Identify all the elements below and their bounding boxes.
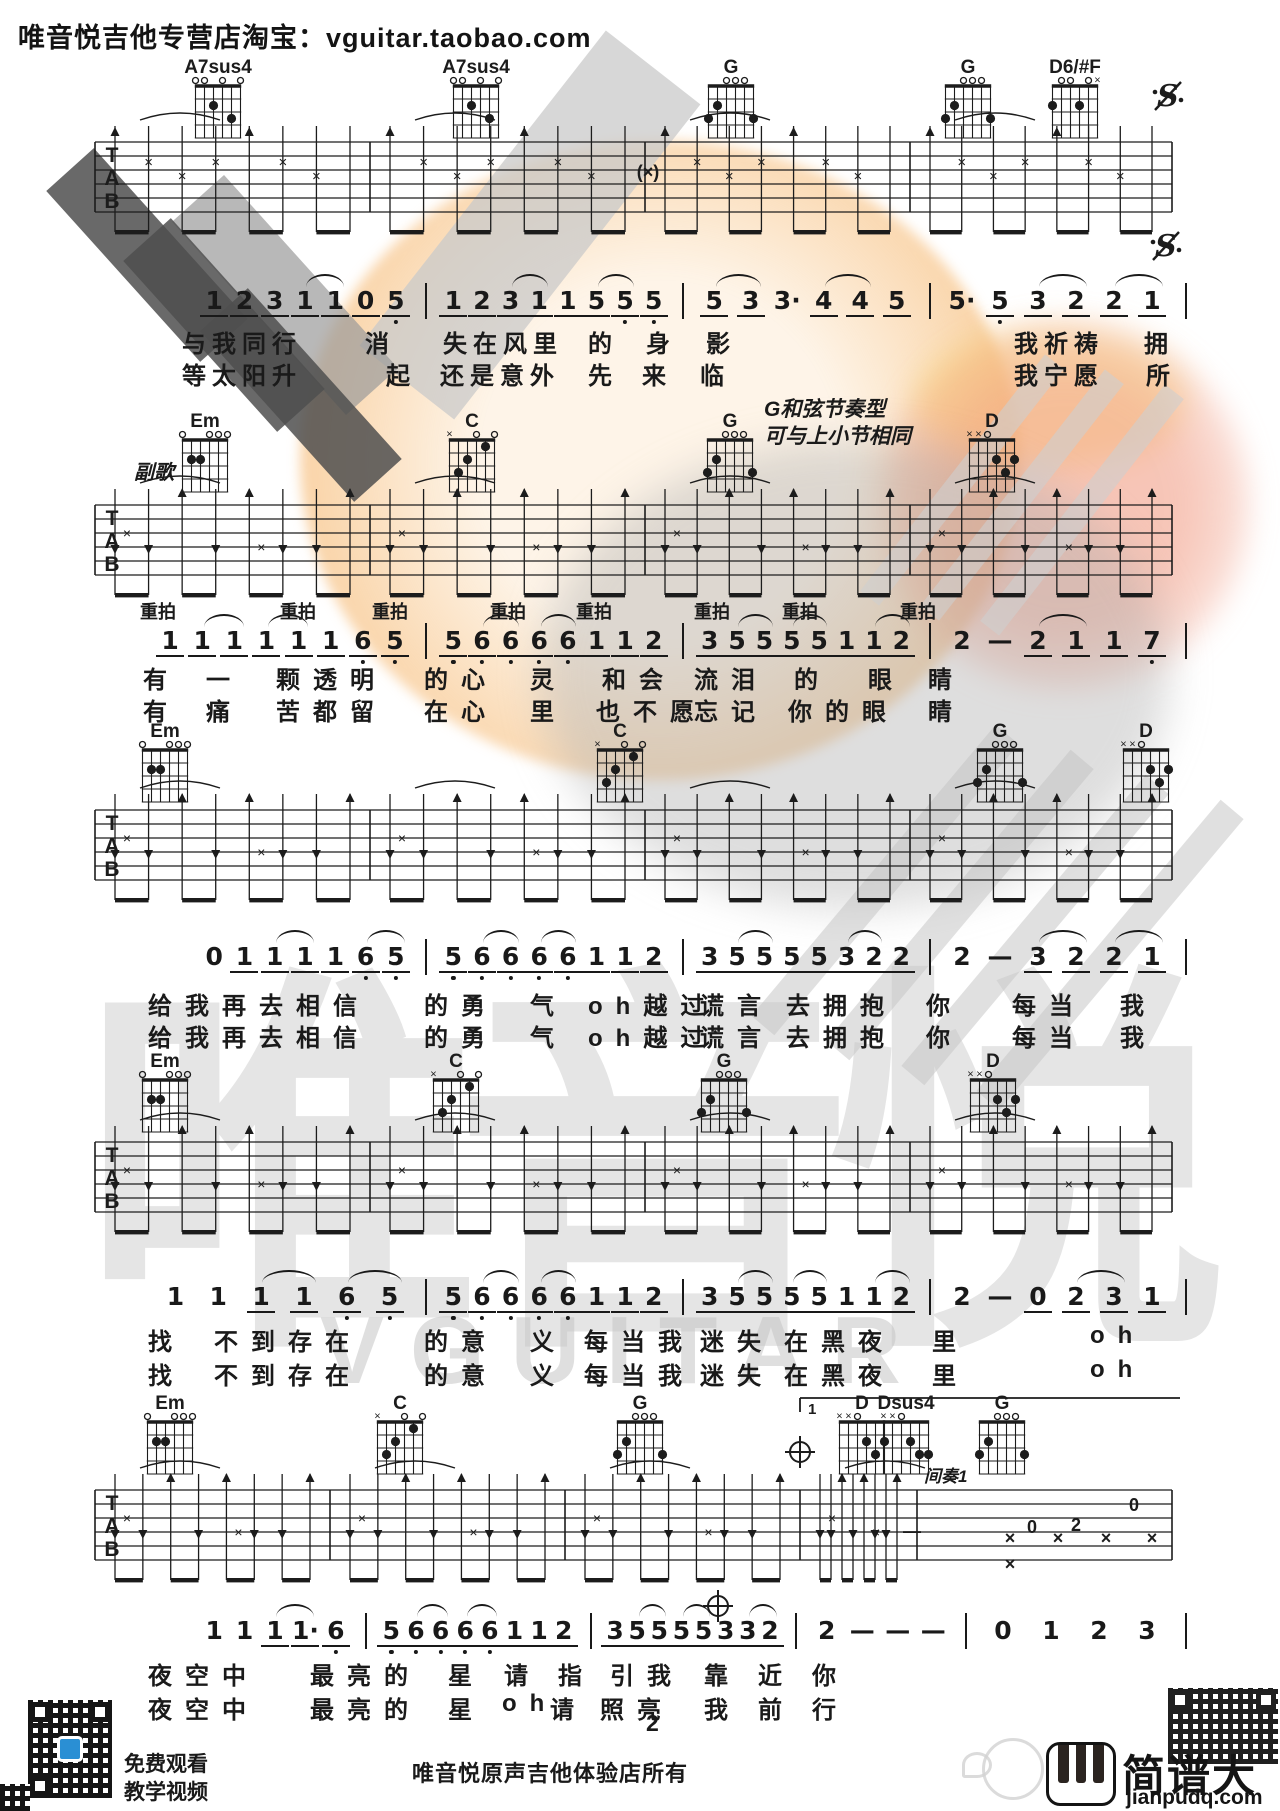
barline (682, 283, 684, 319)
barline (929, 939, 931, 975)
rhythm-annotation: G和弦节奏型可与上小节相同 (764, 396, 911, 451)
lyric-segment: 起 (386, 356, 416, 391)
jianpu-note: 6 (525, 942, 553, 973)
wechat-bubble-icon (962, 1752, 992, 1778)
jianpu-note: 6 (497, 942, 525, 973)
jianpu-note: 5· (948, 286, 976, 316)
jianpu-note: 5 (750, 1282, 778, 1313)
jianpu-note: 1 (285, 626, 313, 657)
jianpu-note: 6 (349, 626, 377, 657)
lyric-segment: 的 (794, 660, 831, 695)
guitar-tab-page: 唯音悦 VGUITAR A7sus4A7sus4GGD6/#F×TAB×××××… (0, 0, 1280, 1811)
lyric-segment: 所 (1146, 356, 1176, 391)
jianpu-note: 5 (805, 942, 833, 973)
jianpu-note: 4 (846, 286, 874, 317)
jianpu-note: 0 (200, 942, 228, 972)
lyric-segment: 星 (448, 1656, 485, 1691)
barline (965, 1613, 967, 1649)
interlude-label: 间奏1 (924, 1462, 967, 1487)
store-header: 唯音悦吉他专营店淘宝：vguitar.taobao.com (18, 16, 592, 55)
barline (929, 283, 931, 319)
lyric-segment: 你 (812, 1656, 849, 1691)
jianpu-note: 2 (813, 1616, 841, 1646)
lyric-segment: 痛 (206, 692, 243, 727)
barline (1185, 1279, 1187, 1315)
lyric-segment: 行 (812, 1690, 849, 1725)
jianpu-note: 1 (525, 286, 553, 317)
lyric-segment: 临 (700, 356, 730, 391)
lyric-segment: 苦都留 (276, 692, 387, 727)
jianpu-note: 2 (887, 1282, 915, 1313)
jianpu-note: 5 (381, 626, 409, 657)
jianpu-note: 1 (1062, 626, 1090, 657)
barline (1185, 623, 1187, 659)
lyric-segment: 里 (932, 1322, 969, 1357)
jianpu-note: 5 (582, 286, 610, 317)
lyric-segment: 气 (530, 986, 567, 1021)
jianpu-note: 1 (833, 1282, 861, 1313)
lyric-segment: 睛 (928, 692, 965, 727)
jianpu-note: 3 (696, 942, 724, 973)
jianpu-note: 1 (1037, 1616, 1065, 1646)
qr-code-left (28, 1700, 112, 1798)
lyric-segment: 影 (706, 324, 736, 359)
jianpu-note: 5 (805, 626, 833, 657)
lyric-segment: 失在风里 (443, 324, 563, 359)
jianpu-note: 6 (554, 942, 582, 973)
jianpu-note: 5 (750, 942, 778, 973)
jianpu-note: 3 (1024, 286, 1052, 317)
lyric-segment: 里 (530, 692, 567, 727)
jianpu-note: 5 (778, 942, 806, 973)
jianpu-note: 2 (1062, 942, 1090, 973)
lyric-segment: 每当 (1012, 986, 1086, 1021)
lyric-segment: 不到存在 (214, 1356, 362, 1391)
lyric-segment: 你的眼 (788, 692, 899, 727)
lyric-segment: 你 (926, 1018, 963, 1053)
jianpu-note: 1 (291, 286, 319, 317)
lyric-segment: 请 (550, 1690, 587, 1725)
jianpu-note: 6 (525, 1282, 553, 1313)
jianpu-note: 1 (1138, 1282, 1166, 1313)
jianpu-note: 1 (290, 1282, 318, 1313)
lyric-segment: 我 (704, 1690, 741, 1725)
accent-label: 重拍 (140, 598, 176, 624)
lyric-segment: 的意 (424, 1322, 498, 1357)
lyric-segment: 最亮的 (310, 1656, 421, 1691)
jianpu-note: 6 (333, 1282, 361, 1313)
jianpu-note: 6 (497, 1282, 525, 1313)
jianpu-note: 2 (1062, 1282, 1090, 1313)
jianpu-note: 5 (439, 1282, 467, 1313)
lyric-segment: 每当我 (584, 1356, 695, 1391)
jianpu-note: 1 (611, 626, 639, 657)
lyric-segment: 的心 (424, 660, 498, 695)
jianpu-note: 2 (948, 942, 976, 972)
jianpu-note: 1 (611, 942, 639, 973)
jianpu-note: 6 (468, 626, 496, 657)
lyric-segment: 消 (365, 324, 395, 359)
lyric-segment: 请 (504, 1656, 541, 1691)
jianpu-note: 6 (525, 626, 553, 657)
lyric-segment: 的勇 (424, 1018, 498, 1053)
barline (1185, 1613, 1187, 1649)
jianpu-note: 3 (1100, 1282, 1128, 1313)
jianpu-note: 5 (805, 1282, 833, 1313)
lyric-segment: 星 (448, 1690, 485, 1725)
jianpu-note: 5 (778, 1282, 806, 1313)
jianpu-note: 2 (230, 286, 258, 317)
jianpu-note: 1 (252, 626, 280, 657)
jianpu-note: 5 (611, 286, 639, 317)
jianpu-note: 5 (640, 286, 668, 317)
jianpu-note: 1 (188, 626, 216, 657)
lyric-segment: 义 (530, 1322, 567, 1357)
lyric-segment: 每当 (1012, 1018, 1086, 1053)
lyric-segment: 给我再去相信 (148, 1018, 370, 1053)
lyric-segment: 灵 (530, 660, 567, 695)
lyric-segment: 有 (143, 660, 180, 695)
lyric-segment: 等太阳升 (182, 356, 302, 391)
barline (795, 1613, 797, 1649)
lyric-segment: 在黑夜 (784, 1356, 895, 1391)
accent-label: 重拍 (372, 598, 408, 624)
lyric-segment: 我 (1120, 986, 1157, 1021)
jianpu-note: 6 (554, 626, 582, 657)
lyric-segment: oh越过 (588, 986, 717, 1021)
jianpu-note: 1 (230, 942, 258, 973)
jianpu-note: 1 (204, 1282, 232, 1312)
footer-center-text: 唯音悦原声吉他体验店所有 (412, 1756, 688, 1788)
jianpu-note: 2 (887, 626, 915, 657)
jianpu-note: 1 (247, 1282, 275, 1313)
jianpu-note: 6 (497, 626, 525, 657)
wechat-ghost-icon (982, 1738, 1044, 1800)
jianpu-note: 3 (833, 942, 861, 973)
jianpu-note: 1 (1138, 286, 1166, 317)
footer-caption-1: 免费观看 (124, 1748, 208, 1778)
barline (929, 623, 931, 659)
jianpu-note: — (884, 1616, 912, 1646)
jianpu-note: 2 (640, 942, 668, 973)
lyric-segment: 里 (932, 1356, 969, 1391)
barline (682, 623, 684, 659)
lyric-segment: 迷失 (700, 1322, 774, 1357)
barline (682, 939, 684, 975)
lyric-segment: oh (1090, 1322, 1145, 1350)
jianpu-note: 2 (1062, 286, 1090, 317)
jianpu-note: 5 (778, 626, 806, 657)
jianpu-note: 1 (200, 1616, 228, 1646)
jianpu-note: 2 (1024, 626, 1052, 657)
jianpu-note: 5 (883, 286, 911, 317)
jianpu-note: — (919, 1616, 947, 1646)
brand-url: jianpudq.com (1126, 1786, 1263, 1810)
lyric-segment: 和会 (602, 660, 676, 695)
jianpu-note: 1 (582, 942, 610, 973)
lyric-segment: 照亮 (600, 1690, 674, 1725)
lyric-segment: 去拥抱 (786, 1018, 897, 1053)
jianpu-note: 1 (220, 626, 248, 657)
jianpu-note: 1 (317, 626, 345, 657)
lyric-segment: 指 (558, 1656, 595, 1691)
lyric-segment: 你 (926, 986, 963, 1021)
jianpu-note: — (986, 942, 1014, 972)
jianpu-note: 5 (750, 626, 778, 657)
barline (590, 1613, 592, 1649)
lyric-segment: 靠 (704, 1656, 741, 1691)
jianpu-note: 1 (261, 1616, 289, 1647)
lyric-segment: 谎言 (700, 1018, 774, 1053)
jianpu-note: 3 (261, 286, 289, 317)
lyric-segment: 找 (148, 1322, 185, 1357)
jianpu-note: 1 (321, 942, 349, 973)
section-label: 副歌 (134, 456, 174, 485)
lyric-segment: 有 (143, 692, 180, 727)
jianpu-note: 6 (322, 1616, 350, 1647)
jianpu-note: 5 (439, 626, 467, 657)
jianpu-note: 1 (439, 286, 467, 317)
barline (425, 623, 427, 659)
jianpu-note: 2 (860, 942, 888, 973)
footer-caption-2: 教学视频 (124, 1776, 208, 1806)
jianpu-note: 1 (161, 1282, 189, 1312)
barline (929, 1279, 931, 1315)
jianpu-note: 1 (231, 1616, 259, 1646)
jianpu-note: 2 (640, 1282, 668, 1313)
jianpu-note: — (986, 1282, 1014, 1312)
jianpu-note: 2 (948, 1282, 976, 1312)
jianpu-note: 1 (611, 1282, 639, 1313)
lyric-segment: 我宁愿 (1014, 356, 1104, 391)
jianpu-note: 5 (723, 942, 751, 973)
lyric-segment: 前 (758, 1690, 795, 1725)
jianpu-note: 1 (1138, 942, 1166, 973)
jianpu-note: 3 (1133, 1616, 1161, 1646)
jianpu-note: 1 (860, 626, 888, 657)
lyric-segment: 在心 (424, 692, 498, 727)
jianpu-note: 1 (156, 626, 184, 657)
lyric-segment: 找 (148, 1356, 185, 1391)
lyric-segment: 引我 (610, 1656, 684, 1691)
barline (425, 283, 427, 319)
lyric-segment: oh越过 (588, 1018, 717, 1053)
jianpu-note: 2 (887, 942, 915, 973)
jianpu-note: — (848, 1616, 876, 1646)
lyric-segment: 拥 (1144, 324, 1174, 359)
jianpu-note: 2 (756, 1616, 784, 1647)
jianpu-note: 0 (352, 286, 380, 317)
jianpu-note: 0 (989, 1616, 1017, 1646)
jianpu-note: 3 (696, 1282, 724, 1313)
lyric-segment: 去拥抱 (786, 986, 897, 1021)
jianpu-note: 2 (948, 626, 976, 656)
lyric-segment: 还是意外 (440, 356, 560, 391)
piano-logo (1046, 1742, 1116, 1806)
lyric-segment: 一 (206, 660, 243, 695)
jianpu-note: 5 (986, 286, 1014, 317)
lyric-segment: 谎言 (700, 986, 774, 1021)
lyric-segment: 不到存在 (214, 1322, 362, 1357)
jianpu-note: 5 (723, 626, 751, 657)
barline (425, 939, 427, 975)
jianpu-note: 3 (737, 286, 765, 317)
jianpu-note: 5 (723, 1282, 751, 1313)
page-number: 2 (646, 1710, 659, 1737)
score-text-layer: 唯音悦吉他专营店淘宝：vguitar.taobao.com 1231105123… (0, 0, 1280, 1811)
lyric-segment: 睛 (928, 660, 965, 695)
lyric-segment: 给我再去相信 (148, 986, 370, 1021)
barline (682, 1279, 684, 1315)
jianpu-note: 1 (200, 286, 228, 317)
jianpu-note: 5 (700, 286, 728, 317)
jianpu-note: 2 (550, 1616, 578, 1647)
jianpu-note: 1 (833, 626, 861, 657)
lyric-segment: 的 (588, 324, 618, 359)
accent-label: 重拍 (576, 598, 612, 624)
lyric-segment: 气 (530, 1018, 567, 1053)
lyric-segment: 义 (530, 1356, 567, 1391)
jianpu-note: 1 (1100, 626, 1128, 657)
lyric-segment: 近 (758, 1656, 795, 1691)
barline (1185, 939, 1187, 975)
lyric-segment: oh (1090, 1356, 1145, 1384)
jianpu-note: 2 (468, 286, 496, 317)
jianpu-note: 6 (554, 1282, 582, 1313)
barline (425, 1279, 427, 1315)
lyric-segment: 先 (588, 356, 618, 391)
accent-label: 重拍 (694, 598, 730, 624)
jianpu-note: 2 (1085, 1616, 1113, 1646)
jianpu-note: 1 (860, 1282, 888, 1313)
lyric-segment: 颗透明 (276, 660, 387, 695)
lyric-segment: 夜空中 (148, 1690, 259, 1725)
jianpu-note: 3 (1024, 942, 1052, 973)
jianpu-note: 6 (352, 942, 380, 973)
jianpu-note: 4 (810, 286, 838, 317)
jianpu-note: 6 (468, 1282, 496, 1313)
lyric-segment: 的意 (424, 1356, 498, 1391)
jianpu-note: 1 (321, 286, 349, 317)
jianpu-note: 5 (376, 1282, 404, 1313)
jianpu-note: 7 (1138, 626, 1166, 657)
jianpu-note: 1 (554, 286, 582, 317)
lyric-segment: 流泪 (694, 660, 768, 695)
jianpu-note: 6 (468, 942, 496, 973)
lyric-segment: 也不愿 (596, 692, 707, 727)
jianpu-note: — (986, 626, 1014, 656)
jianpu-note: 3· (773, 286, 801, 316)
jianpu-note: 3 (497, 286, 525, 317)
barline (1185, 283, 1187, 319)
jianpu-note: 1 (291, 942, 319, 973)
qr-code-corner (0, 1784, 30, 1811)
jianpu-note: 1 (582, 626, 610, 657)
jianpu-note: 5 (382, 286, 410, 317)
lyric-segment: 最亮的 (310, 1690, 421, 1725)
lyric-segment: 来 (642, 356, 672, 391)
jianpu-note: 0 (1024, 1282, 1052, 1313)
lyric-segment: 忘记 (694, 692, 768, 727)
lyric-segment: 迷失 (700, 1356, 774, 1391)
lyric-segment: 身 (646, 324, 676, 359)
jianpu-note: 2 (640, 626, 668, 657)
lyric-segment: 的勇 (424, 986, 498, 1021)
jianpu-note: 3 (696, 626, 724, 657)
jianpu-note: 5 (439, 942, 467, 973)
jianpu-note: 1· (291, 1616, 319, 1647)
jianpu-note: 5 (382, 942, 410, 973)
lyric-segment: 在黑夜 (784, 1322, 895, 1357)
jianpu-note: 1 (582, 1282, 610, 1313)
lyric-segment: 夜空中 (148, 1656, 259, 1691)
jianpu-note: 2 (1100, 286, 1128, 317)
jianpu-note: 2 (1100, 942, 1128, 973)
lyric-segment: 每当我 (584, 1322, 695, 1357)
jianpu-note: 1 (261, 942, 289, 973)
barline (365, 1613, 367, 1649)
lyric-segment: 我 (1120, 1018, 1157, 1053)
lyric-segment: 与我同行 (182, 324, 302, 359)
lyric-segment: 我祈祷 (1014, 324, 1104, 359)
lyric-segment: 眼 (868, 660, 905, 695)
